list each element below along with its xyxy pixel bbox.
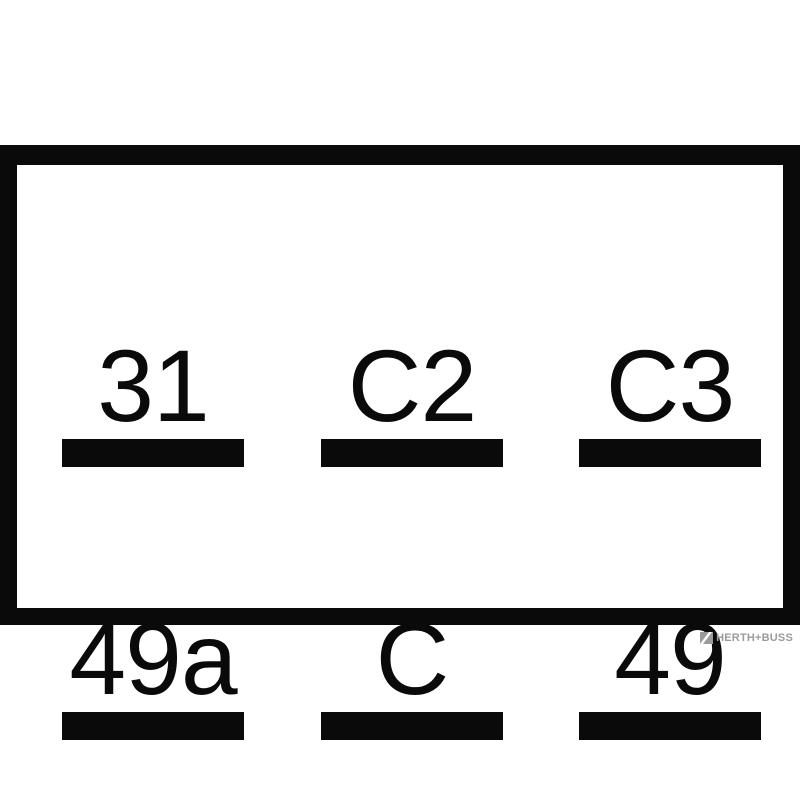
- terminal-31: 31: [62, 335, 244, 467]
- terminal-49a: 49a: [62, 608, 244, 740]
- terminal-pin-bar-31: [62, 439, 244, 467]
- terminal-c3: C3: [579, 335, 761, 467]
- herth-buss-logo-text: HERTH+BUSS: [716, 632, 793, 644]
- relay-pinout-diagram: 31 C2 C3 49a C 49 HERTH+B: [0, 0, 800, 800]
- herth-buss-striped-square-icon: [700, 632, 713, 644]
- terminal-pin-bar-c2: [321, 439, 503, 467]
- terminal-49: 49: [579, 608, 761, 740]
- terminal-pin-bar-c: [321, 712, 503, 740]
- terminal-pin-bar-49: [579, 712, 761, 740]
- terminal-label-49a: 49a: [62, 608, 244, 710]
- terminal-label-31: 31: [62, 335, 244, 437]
- pinout-frame: 31 C2 C3 49a C 49: [0, 145, 800, 625]
- terminal-label-c2: C2: [321, 335, 503, 437]
- terminal-c: C: [321, 608, 503, 740]
- terminal-c2: C2: [321, 335, 503, 467]
- terminal-label-c: C: [321, 608, 503, 710]
- terminal-label-49: 49: [579, 608, 761, 710]
- terminal-pin-bar-49a: [62, 712, 244, 740]
- herth-buss-logo: HERTH+BUSS: [700, 632, 793, 644]
- terminal-label-c3: C3: [579, 335, 761, 437]
- terminal-pin-bar-c3: [579, 439, 761, 467]
